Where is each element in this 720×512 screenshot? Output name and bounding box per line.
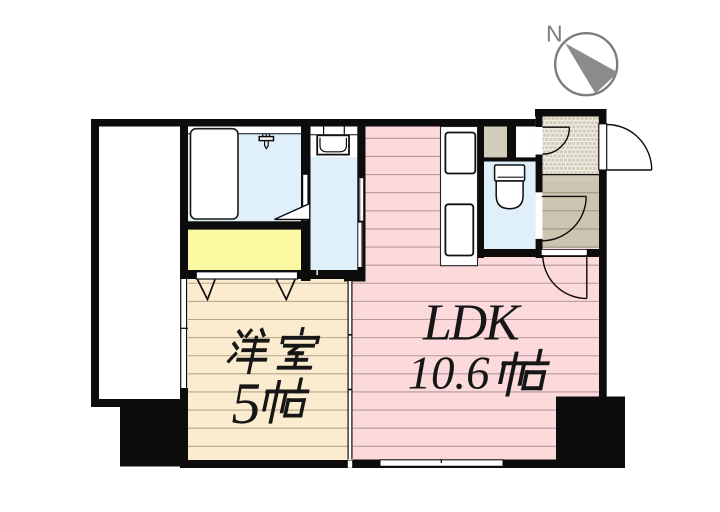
svg-text:5: 5 — [232, 370, 262, 436]
svg-text:LDK: LDK — [422, 295, 522, 352]
svg-text:N: N — [546, 21, 563, 47]
svg-text:10.6: 10.6 — [408, 348, 491, 400]
